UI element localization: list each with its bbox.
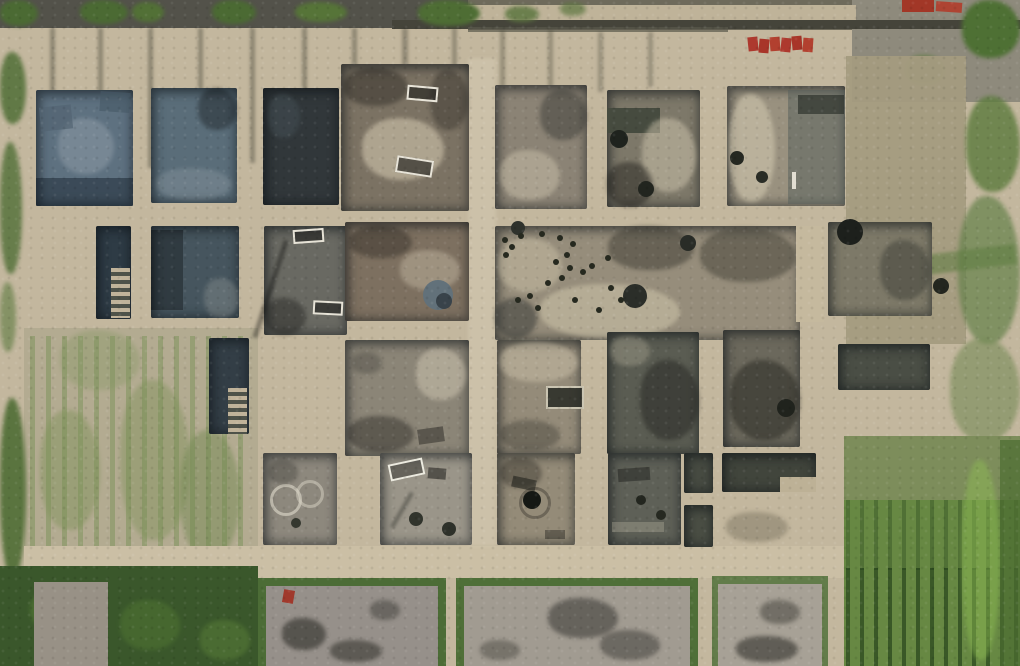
aerial-photo-excavation-site [0,0,1020,666]
posthole [589,263,595,269]
posthole [518,233,524,239]
posthole [553,259,559,265]
posthole [559,275,565,281]
posthole [503,252,509,258]
posthole [570,241,576,247]
posthole [509,244,515,250]
posthole [527,293,533,299]
posthole [618,297,624,303]
posthole [605,255,611,261]
posthole [596,307,602,313]
posthole [567,265,573,271]
posthole [535,305,541,311]
posthole [545,280,551,286]
posthole [580,269,586,275]
posthole [539,231,545,237]
grain-overlay [0,0,1020,666]
posthole [572,297,578,303]
posthole [515,297,521,303]
posthole [564,252,570,258]
posthole [502,237,508,243]
posthole [608,285,614,291]
posthole [557,235,563,241]
